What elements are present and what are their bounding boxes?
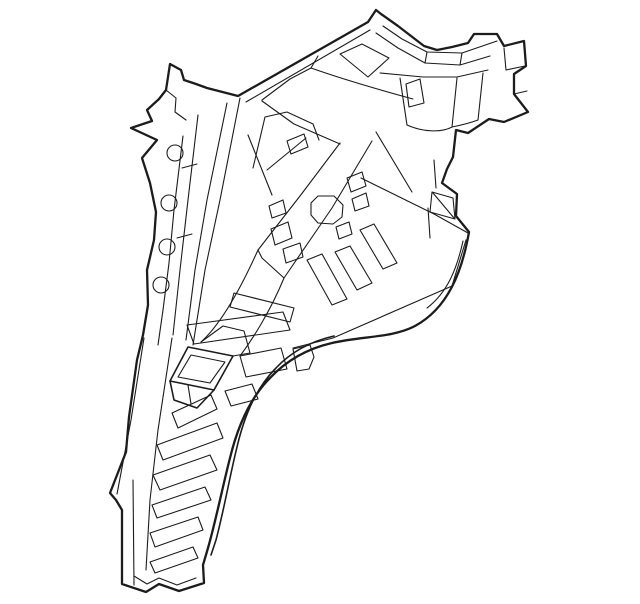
- line-art-stroke: [258, 250, 284, 278]
- line-art-stroke: [504, 48, 525, 70]
- line-art-stroke: [262, 68, 311, 100]
- line-art-stroke: [170, 347, 233, 390]
- line-art-stroke: [157, 423, 223, 460]
- line-art-stroke: [360, 224, 397, 269]
- line-art-stroke: [117, 338, 144, 494]
- line-art-stroke: [182, 164, 197, 168]
- line-art-stroke: [267, 138, 306, 170]
- illustration-canvas: [0, 0, 640, 604]
- line-art-stroke: [186, 103, 227, 340]
- line-art-stroke: [150, 547, 198, 573]
- line-art-stroke: [293, 240, 466, 348]
- line-art-stroke: [283, 243, 303, 263]
- line-art-stroke: [434, 160, 436, 188]
- quarter-panel-line-art-illustration: [0, 0, 640, 604]
- line-art-stroke: [428, 208, 430, 238]
- line-art-stroke: [460, 53, 462, 65]
- line-art-stroke: [253, 112, 319, 168]
- line-art-stroke: [478, 73, 483, 120]
- line-art-stroke: [134, 576, 196, 585]
- line-art-stroke: [452, 120, 478, 127]
- line-art-stroke: [352, 193, 369, 211]
- line-art-stroke: [188, 385, 191, 404]
- line-art-stroke: [311, 56, 318, 68]
- line-art-stroke: [336, 222, 352, 239]
- line-art-stroke: [133, 480, 134, 585]
- line-art-stroke: [248, 135, 272, 195]
- line-art-stroke: [347, 172, 366, 192]
- line-art-stroke: [287, 134, 308, 154]
- line-art-stroke: [311, 196, 343, 224]
- line-art-stroke: [514, 91, 527, 94]
- line-art-stroke: [173, 115, 198, 335]
- line-art-stroke: [187, 312, 290, 344]
- line-art-stroke: [178, 355, 225, 383]
- line-art-stroke: [335, 246, 372, 290]
- line-art-stroke: [271, 222, 292, 245]
- line-art-stroke: [262, 101, 340, 144]
- line-art-stroke: [166, 90, 186, 120]
- line-art-stroke: [340, 44, 389, 77]
- line-art-stroke: [159, 239, 175, 255]
- line-art-stroke: [361, 178, 468, 233]
- line-art-stroke: [150, 517, 203, 547]
- line-art-stroke: [269, 200, 286, 218]
- line-art-stroke: [201, 250, 258, 342]
- line-art-stroke: [172, 395, 217, 428]
- line-art-stroke: [407, 125, 452, 131]
- line-art-stroke: [406, 79, 424, 107]
- line-art-stroke: [146, 338, 172, 570]
- line-art-stroke: [211, 336, 334, 555]
- line-art-stroke: [240, 348, 287, 377]
- line-art-stroke: [225, 384, 258, 406]
- line-art-stroke: [452, 78, 457, 127]
- line-art-stroke: [376, 132, 412, 192]
- line-art-stroke: [110, 10, 528, 592]
- line-art-stroke: [246, 30, 370, 102]
- line-art-stroke: [380, 70, 488, 77]
- line-art-stroke: [233, 331, 250, 356]
- line-art-stroke: [152, 487, 211, 518]
- line-art-stroke: [425, 52, 427, 63]
